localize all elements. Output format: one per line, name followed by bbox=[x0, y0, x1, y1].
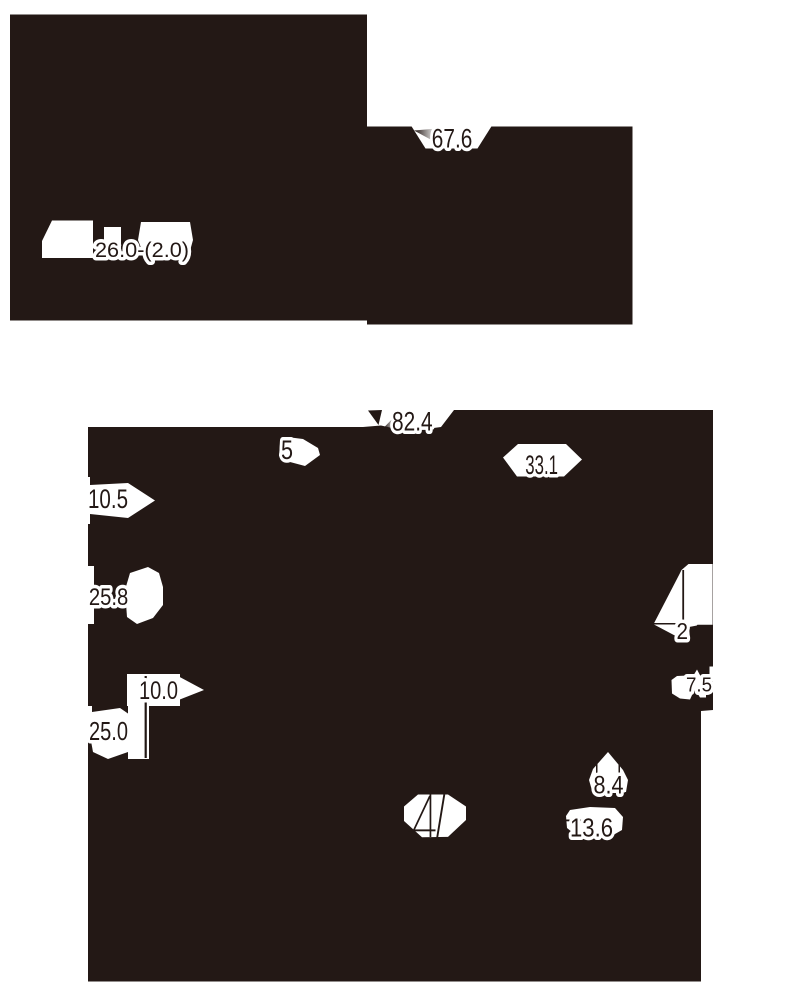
svg-text:25.8: 25.8 bbox=[89, 584, 128, 611]
svg-text:13.6: 13.6 bbox=[570, 813, 613, 843]
svg-text:7.5: 7.5 bbox=[686, 675, 712, 697]
svg-text:10.0: 10.0 bbox=[139, 677, 178, 705]
svg-text:8.4: 8.4 bbox=[594, 772, 624, 800]
svg-text:2: 2 bbox=[677, 618, 689, 644]
svg-text:33.1: 33.1 bbox=[525, 450, 558, 480]
svg-text:5: 5 bbox=[281, 435, 293, 465]
svg-text:10.5: 10.5 bbox=[88, 484, 128, 514]
svg-text:26.0-(2.0): 26.0-(2.0) bbox=[95, 238, 189, 262]
svg-text:67.6: 67.6 bbox=[432, 124, 473, 154]
svg-text:25.0: 25.0 bbox=[89, 716, 128, 746]
svg-text:82.4: 82.4 bbox=[392, 407, 433, 437]
